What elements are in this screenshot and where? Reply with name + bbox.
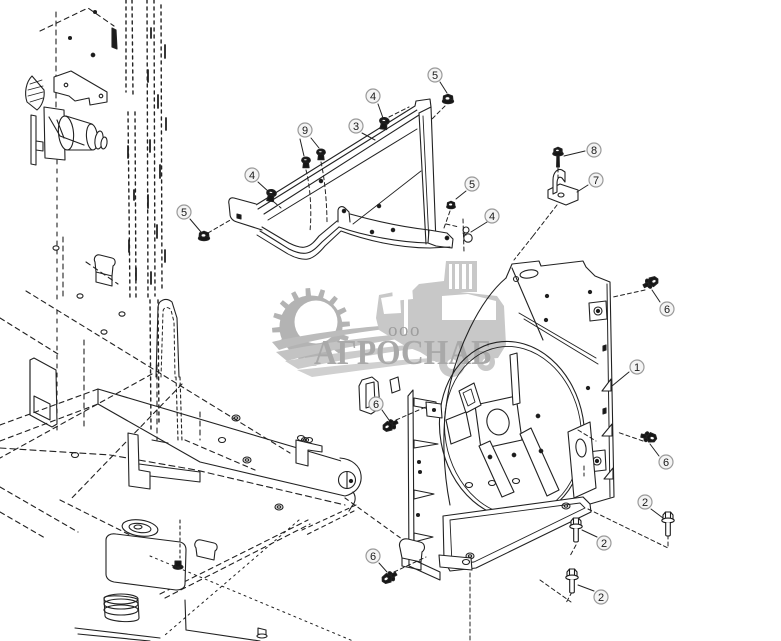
svg-text:1: 1 [634,362,640,374]
svg-text:5: 5 [469,179,475,191]
svg-text:5: 5 [181,207,187,219]
svg-text:6: 6 [663,457,669,469]
svg-text:6: 6 [664,304,670,316]
svg-text:6: 6 [370,551,376,563]
svg-text:2: 2 [598,592,604,604]
svg-text:4: 4 [489,211,495,223]
svg-text:3: 3 [353,121,359,133]
svg-text:4: 4 [249,170,255,182]
svg-text:7: 7 [593,175,599,187]
svg-text:2: 2 [601,538,607,550]
svg-text:5: 5 [432,70,438,82]
svg-text:6: 6 [373,399,379,411]
svg-text:2: 2 [642,497,648,509]
svg-text:4: 4 [370,91,376,103]
svg-text:8: 8 [591,145,597,157]
svg-text:9: 9 [302,125,308,137]
